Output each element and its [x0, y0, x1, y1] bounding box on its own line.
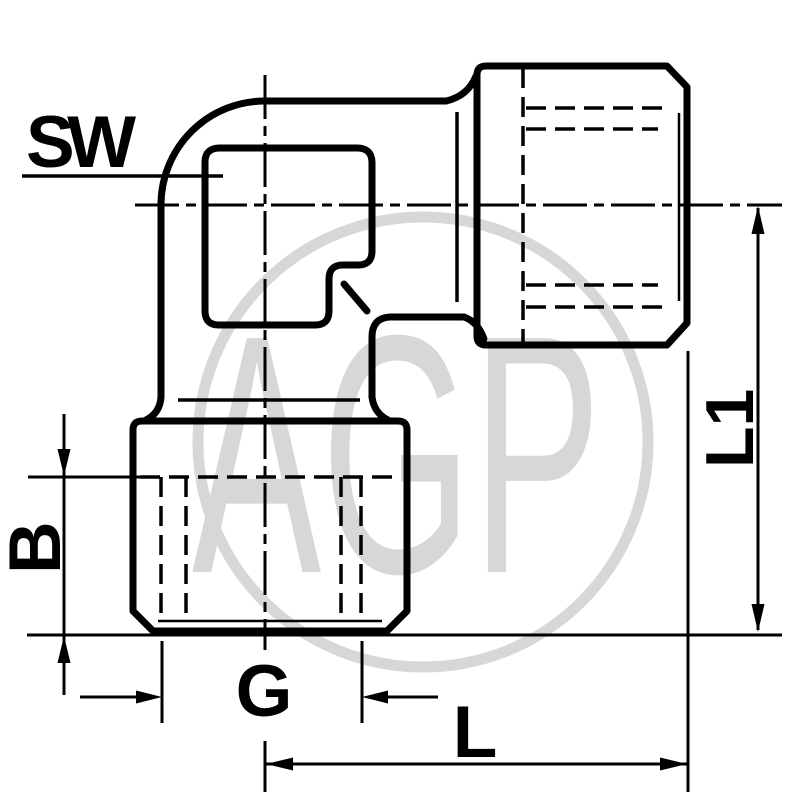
- right-socket-top-flare: [446, 76, 476, 101]
- dimension-g: G: [80, 641, 438, 732]
- dimension-label-b: B: [0, 521, 76, 574]
- g-arrow-left: [362, 691, 388, 704]
- l1-arrow-up: [752, 206, 765, 234]
- l-arrow-right: [660, 758, 687, 771]
- watermark-text: AGP: [192, 264, 601, 645]
- dimension-label-sw: SW: [26, 102, 136, 183]
- dimension-label-l: L: [453, 692, 498, 773]
- technical-drawing: AGP: [0, 0, 800, 800]
- g-arrow-right: [136, 691, 162, 704]
- l1-arrow-down: [752, 604, 765, 632]
- dimension-label-g: G: [236, 651, 293, 732]
- dimension-label-l1: L1: [692, 389, 768, 468]
- b-arrow-down: [58, 449, 71, 476]
- dimension-sw: SW: [22, 102, 223, 183]
- watermark: AGP: [192, 217, 648, 667]
- bottom-socket-left-flare: [146, 397, 161, 420]
- b-arrow-up: [58, 636, 71, 663]
- dimension-l1: L1: [692, 206, 768, 632]
- drawing-canvas: AGP: [0, 0, 800, 800]
- dimension-b: B: [0, 414, 142, 695]
- l-arrow-left: [266, 758, 293, 771]
